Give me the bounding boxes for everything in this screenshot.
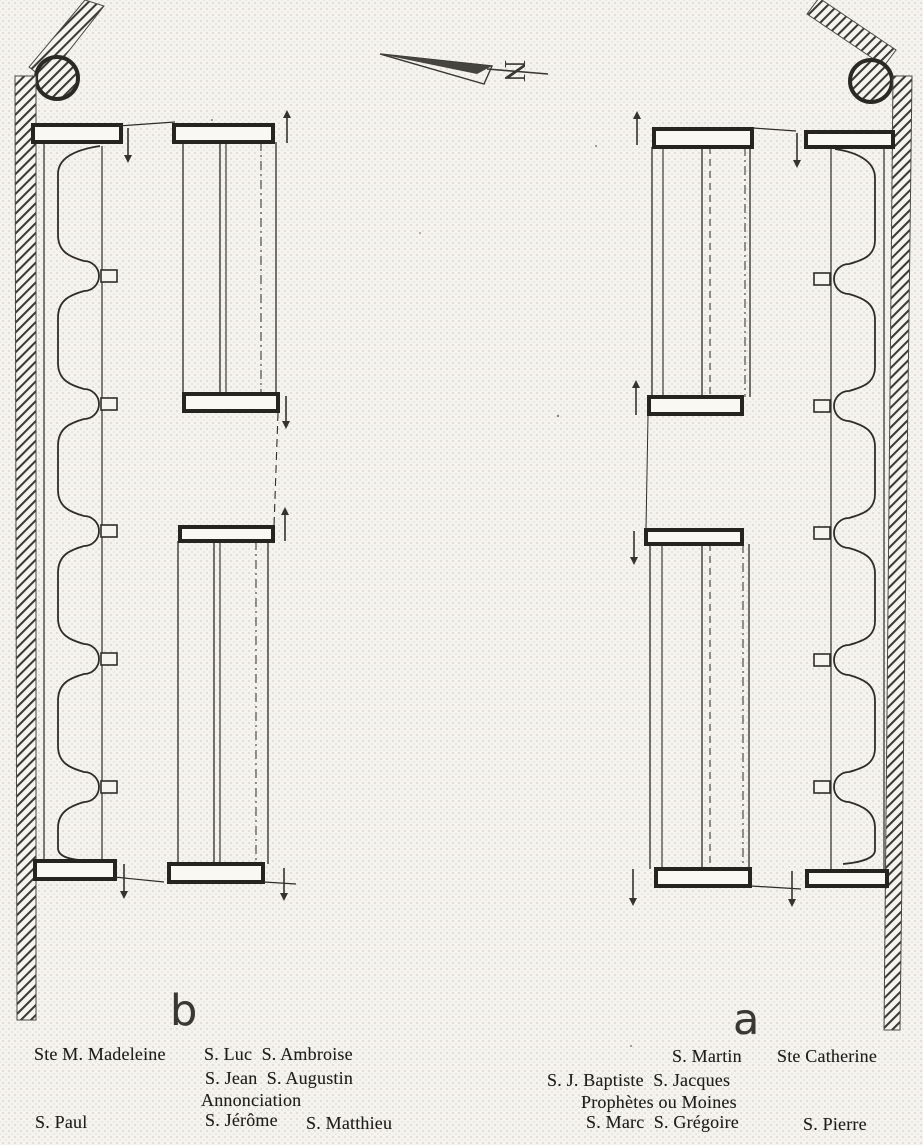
caption-matthieu: S. Matthieu	[306, 1113, 392, 1134]
stall-end-cap	[646, 530, 742, 544]
stall-block-a	[629, 111, 893, 907]
right-column	[850, 60, 892, 102]
caption-paul: S. Paul	[35, 1112, 87, 1133]
section-label-a: a	[733, 999, 759, 1042]
caption-ste-madeleine: Ste M. Madeleine	[34, 1044, 166, 1065]
inner-stall-row-left-upper	[174, 125, 278, 411]
north-letter: N	[498, 60, 533, 82]
caption-martin: S. Martin	[672, 1046, 742, 1067]
caption-luc-ambroise: S. Luc S. Ambroise	[204, 1044, 353, 1065]
caption-baptiste-jacques: S. J. Baptiste S. Jacques	[547, 1070, 730, 1091]
direction-arrow	[630, 531, 638, 565]
direction-arrow	[793, 133, 801, 168]
stall-end-cap	[184, 394, 278, 411]
guide-lines-right	[646, 128, 801, 889]
stall-armrest-tabs-left	[101, 270, 117, 793]
stall-end-cap	[169, 864, 263, 882]
direction-arrow	[120, 864, 128, 899]
north-arrow: N	[380, 54, 548, 84]
inner-stall-row-right-upper	[649, 129, 752, 414]
stall-end-cap	[654, 129, 752, 147]
inner-stall-row-right-lower	[646, 530, 750, 886]
caption-jean-augustin: S. Jean S. Augustin	[205, 1068, 353, 1089]
right-diagonal-wall	[807, 0, 896, 66]
direction-arrow	[633, 111, 641, 145]
stall-block-b	[33, 110, 296, 901]
stall-end-cap	[180, 527, 273, 541]
caption-ste-catherine: Ste Catherine	[777, 1046, 877, 1067]
plan-figure: N	[0, 0, 923, 1145]
stall-end-cap	[656, 869, 750, 886]
caption-jerome: S. Jérôme	[205, 1110, 278, 1131]
stall-end-cap	[35, 861, 115, 879]
direction-arrow	[281, 507, 289, 541]
outer-stall-row-left	[33, 125, 121, 879]
stall-end-cap	[649, 397, 742, 414]
stall-end-cap	[33, 125, 121, 142]
guide-lines-left	[114, 122, 296, 884]
caption-pierre: S. Pierre	[803, 1114, 867, 1135]
direction-arrow	[629, 869, 637, 906]
stall-end-cap	[807, 871, 887, 886]
outer-stall-row-right	[806, 132, 893, 886]
caption-annonciation: Annonciation	[201, 1090, 301, 1111]
direction-arrow	[280, 868, 288, 901]
caption-prophetes: Prophètes ou Moines	[581, 1092, 737, 1113]
floor-plan-drawing: N	[0, 0, 923, 1145]
direction-arrow	[283, 110, 291, 143]
direction-arrow	[632, 380, 640, 415]
scan-artifacts	[211, 119, 632, 1047]
direction-arrow	[124, 128, 132, 163]
stall-end-cap	[174, 125, 273, 142]
left-column	[36, 57, 78, 99]
stall-end-cap	[806, 132, 893, 147]
direction-arrow	[282, 396, 290, 429]
section-label-b: b	[170, 990, 197, 1033]
stall-armrest-tabs-right	[814, 273, 830, 793]
inner-stall-row-left-lower	[169, 527, 273, 882]
left-side-wall	[15, 76, 36, 1020]
caption-marc-gregoire: S. Marc S. Grégoire	[586, 1112, 739, 1133]
